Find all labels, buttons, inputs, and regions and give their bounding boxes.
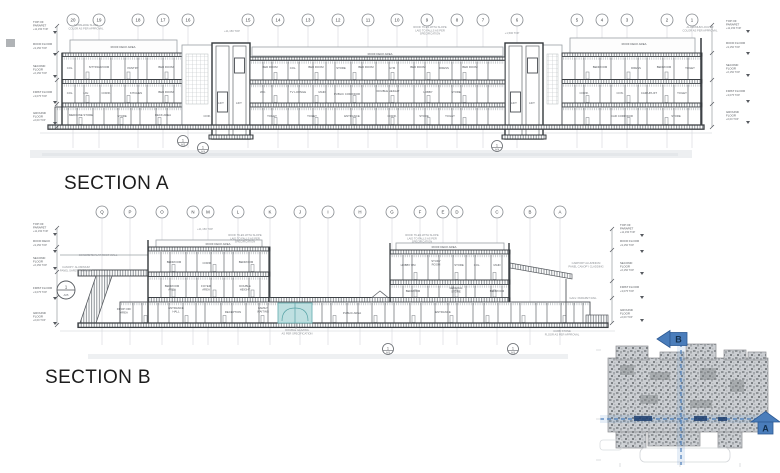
room-label: TV LOUNGE — [290, 90, 306, 94]
grid-bubble-label: 12 — [336, 18, 341, 23]
key-plan-room-block — [650, 372, 670, 380]
room-label: COL. — [67, 91, 74, 95]
level-elevation: +11,150 TOP — [33, 27, 48, 31]
level-label: FIRST FLOOR — [726, 89, 745, 93]
level-flag-icon — [746, 52, 750, 55]
grid-bubble-label: J — [299, 210, 301, 215]
level-flag-icon — [746, 100, 750, 103]
core-pit — [502, 135, 546, 139]
room-label: LIFT — [529, 101, 535, 105]
room-label: CAR CORRIDOR — [611, 114, 633, 118]
level-elevation: +3,075 TOP — [33, 94, 47, 98]
room-label: MAID — [494, 263, 501, 267]
level-label: TOP OFPARAPET — [726, 19, 740, 27]
level-label: TOP OFPARAPET — [33, 222, 47, 230]
room-label: BED ROOM — [158, 90, 174, 94]
room-label: MEDICINE STORE — [69, 113, 93, 117]
room-label: BEDROOM — [657, 65, 672, 69]
level-elevation: +9,150 TOP — [620, 243, 634, 247]
grid-bubble-label: K — [269, 210, 272, 215]
key-plan-wing — [686, 344, 716, 360]
grid-bubble-label: 18 — [136, 18, 141, 23]
grid-bubble-label: N — [191, 210, 194, 215]
room-label: LIFT — [511, 101, 517, 105]
note-label: +11,150 TOP — [197, 227, 213, 231]
section-b-title: SECTION B — [45, 367, 151, 389]
window-strip — [251, 108, 504, 110]
room-label: STORE — [336, 66, 346, 70]
level-flag-icon — [53, 322, 57, 325]
detail-sheet: A05 — [181, 144, 186, 147]
level-label: FIRST FLOOR — [620, 285, 639, 289]
room-label: FAMILYWAITING — [257, 306, 269, 313]
note-label: CARPORT ALUMINIUMPANEL CANOPY CLADDING — [568, 261, 603, 268]
note-label: GALV. PARAPET RAIL — [569, 296, 597, 300]
margin-mark — [6, 39, 15, 47]
room-label: LIFT — [236, 101, 242, 105]
section-line-dash — [694, 416, 707, 421]
level-flag-icon — [746, 121, 750, 124]
level-flag-icon — [53, 233, 57, 236]
room-label: CON. — [617, 91, 624, 95]
room-label: ROOF DECK AREA — [111, 45, 136, 49]
room-label: ROOF DECK AREA — [432, 245, 457, 249]
level-flag-icon — [53, 297, 57, 300]
grid-bubble-label: 15 — [246, 18, 251, 23]
key-plan-wing — [748, 352, 766, 360]
level-elevation: +11,150 TOP — [726, 26, 741, 30]
section-line-dash — [718, 417, 727, 421]
note-label: ROOF TILES WITH SLOPELAID TO FALLS AS PE… — [413, 25, 446, 36]
room-label: COL. — [67, 66, 74, 70]
room-label: CAR UPLIFT — [641, 91, 658, 95]
skylight — [372, 291, 388, 298]
grid-bubble-label: Q — [100, 210, 104, 215]
room-label: TOILET — [677, 91, 687, 95]
note-label: CANOPY: ALUMINIUMPANEL SAFETY GLAZING — [60, 265, 92, 272]
floor-slab — [250, 103, 505, 107]
level-elevation: +0,00 TOP — [620, 315, 633, 319]
note-label: +11,150 TOP — [224, 29, 240, 33]
level-flag-icon — [640, 272, 644, 275]
room-label: BED ROOM — [358, 65, 374, 69]
detail-number: 1 — [496, 143, 498, 147]
level-elevation: +6,150 TOP — [33, 71, 47, 75]
room-label: PUBLIC CORRIDOR — [334, 92, 360, 96]
grid-bubble-label: 13 — [306, 18, 311, 23]
room-label: TOILET — [267, 114, 277, 118]
level-label: SECONDFLOOR — [33, 64, 45, 72]
note-label: CONCRETE FLAT ROOF WALL — [79, 253, 118, 257]
key-plan-wing — [724, 350, 746, 360]
room-label: STUDYROOM — [431, 259, 441, 266]
room-label: PUBLIC AREA — [343, 311, 361, 315]
level-flag-icon — [746, 74, 750, 77]
level-label: FIRST FLOOR — [33, 90, 52, 94]
detail-sheet: A06 — [386, 352, 391, 355]
floor-slab — [250, 80, 505, 84]
room-label: ENTRANCE — [344, 114, 360, 118]
note-label: ROOF TILES WITH SLOPELAID TO FALLS AS PE… — [405, 233, 438, 244]
room-label: ROOF DECK AREA — [206, 242, 231, 246]
level-flag-icon — [53, 75, 57, 78]
room-label: BEDROOM — [593, 65, 608, 69]
grid-bubble-label: H — [358, 210, 361, 215]
level-elevation: +9,150 TOP — [33, 243, 47, 247]
section-a-title: SECTION A — [64, 173, 169, 195]
key-plan-wing — [648, 432, 700, 446]
room-label: ROOF DECK AREA — [622, 42, 647, 46]
ramp — [80, 276, 112, 323]
room-label: GYM — [389, 66, 396, 70]
window-strip — [121, 303, 589, 305]
room-label: CORR. — [101, 91, 110, 95]
level-label: ROOF FLOOR — [33, 42, 52, 46]
detail-number: 1 — [512, 346, 514, 350]
room-label: FOYERAREA — [201, 284, 211, 291]
ghost-underlay — [88, 354, 568, 359]
level-label: SECONDFLOOR — [620, 261, 632, 269]
room-label: LAV. — [83, 91, 89, 95]
floor-slab — [78, 323, 608, 327]
floor-slab — [48, 125, 704, 129]
level-elevation: +3,075 TOP — [33, 290, 47, 294]
level-flag-icon — [53, 31, 57, 34]
detail-sheet: A06 — [511, 352, 516, 355]
room-label: BED ROOM — [308, 65, 324, 69]
room-label: DRESS — [631, 66, 641, 70]
floor-slab — [562, 103, 702, 107]
level-label: GROUNDFLOOR — [33, 311, 46, 319]
room-label: PANTRY — [127, 66, 138, 70]
grid-bubble-label: G — [390, 210, 394, 215]
grid-bubble-label: A — [559, 210, 562, 215]
grid-bubble-label: F — [419, 210, 422, 215]
room-label: MAID — [319, 90, 326, 94]
drawing-canvas: 2019181716151413121110987654321TOP OFPAR… — [0, 0, 780, 473]
grid-bubble-label: O — [160, 210, 164, 215]
level-flag-icon — [53, 250, 57, 253]
room-label: DOUBLE HEIGHT — [377, 89, 400, 93]
grid-bubble-label: M — [206, 210, 210, 215]
grid-bubble-label: 11 — [366, 18, 371, 23]
grid-bubble-label: 14 — [276, 18, 281, 23]
floor-band — [390, 254, 510, 280]
floor-slab — [148, 272, 270, 277]
level-label: GROUNDFLOOR — [726, 110, 739, 118]
note-label: ALUMINIUM LOUVERCOLOR AS PER APPROVAL — [683, 25, 718, 32]
level-elevation: +9,150 TOP — [726, 45, 740, 49]
floor-slab — [148, 247, 270, 251]
floor-slab — [562, 53, 702, 57]
grid-bubble-label: I — [327, 210, 328, 215]
room-label: BEDROOM — [406, 289, 421, 293]
room-label: LIFT — [218, 101, 224, 105]
key-plan-room-block — [640, 395, 658, 404]
floor-slab — [148, 298, 510, 303]
level-elevation: +11,150 TOP — [33, 229, 48, 233]
floor-slab — [62, 53, 182, 57]
window-strip — [56, 108, 181, 110]
level-flag-icon — [640, 250, 644, 253]
room-label: DECK AREA — [155, 113, 171, 117]
room-label: COR. — [204, 114, 211, 118]
window-strip — [149, 277, 269, 279]
room-label: TOILET — [445, 114, 455, 118]
grid-bubble-label: E — [442, 210, 445, 215]
level-elevation: +0,00 TOP — [726, 117, 739, 121]
window-strip — [251, 85, 504, 87]
level-elevation: +0,00 TOP — [33, 118, 46, 122]
floor-slab — [250, 57, 505, 60]
level-elevation: +6,150 TOP — [620, 268, 634, 272]
level-label: ROOF DECK — [33, 239, 50, 243]
level-label: FIRST FLOOR — [33, 286, 52, 290]
section-arrow-b-icon — [657, 331, 670, 348]
room-label: ENTRANCE — [435, 310, 451, 314]
key-plan-room-block — [620, 365, 634, 375]
room-label: KITCHEN — [130, 91, 142, 95]
room-label: BED ROOM — [462, 65, 478, 69]
carport-canopy — [510, 263, 572, 279]
detail-sheet: A04 — [201, 151, 206, 154]
level-label: SECONDFLOOR — [726, 63, 738, 71]
room-label: CORR. — [202, 261, 211, 265]
floor-slab — [562, 80, 702, 84]
level-elevation: +3,075 TOP — [726, 93, 740, 97]
grid-bubble-label: 19 — [97, 18, 102, 23]
room-label: TOILET — [685, 66, 695, 70]
window-strip — [149, 252, 269, 254]
floor-slab — [62, 80, 182, 84]
level-label: ROOF FLOOR — [620, 239, 639, 243]
level-label: TOP OFPARAPET — [620, 223, 634, 231]
floor-slab — [62, 103, 182, 107]
key-plan-room-block — [700, 368, 716, 380]
level-label: GROUNDFLOOR — [33, 111, 46, 119]
section-marker-a-label: A — [762, 424, 769, 434]
level-elevation: +3,075 TOP — [620, 289, 634, 293]
room-label: BEDROOM — [167, 260, 182, 264]
grid-bubble-label: B — [529, 210, 532, 215]
room-label: DOUBLEHEIGHT — [239, 284, 251, 291]
room-label: HOBBY RM — [401, 263, 417, 267]
room-label: CORR. — [579, 91, 588, 95]
grid-bubble-label: 20 — [71, 18, 76, 23]
room-label: BEDROOM — [490, 289, 505, 293]
level-flag-icon — [53, 53, 57, 56]
room-label: DRESS — [439, 66, 449, 70]
room-label: LOBBY — [423, 90, 432, 94]
room-label: TOILET — [307, 114, 317, 118]
grid-bubble-label: 17 — [161, 18, 166, 23]
room-label: CORR. — [387, 114, 396, 118]
generated-linework: 2019181716151413121110987654321TOP OFPAR… — [0, 0, 768, 467]
level-flag-icon — [640, 319, 644, 322]
level-flag-icon — [53, 267, 57, 270]
core-pit — [209, 135, 253, 139]
level-elevation: +11,150 TOP — [620, 230, 635, 234]
detail-sheet: A04 — [495, 149, 500, 152]
room-label: STORE — [454, 263, 464, 267]
room-label: COL. — [290, 66, 297, 70]
room-label: BEDROOM — [239, 260, 254, 264]
drawing-sheet: 2019181716151413121110987654321TOP OFPAR… — [0, 0, 780, 473]
grid-bubble-label: 10 — [395, 18, 400, 23]
room-label: STORE — [451, 90, 461, 94]
level-flag-icon — [640, 234, 644, 237]
key-plan-wing — [616, 346, 648, 360]
level-elevation: +9,150 TOP — [33, 46, 47, 50]
level-elevation: +0,00 TOP — [33, 318, 46, 322]
room-label: BED ROOM — [158, 65, 174, 69]
level-flag-icon — [53, 101, 57, 104]
grid-bubble-label: P — [129, 210, 132, 215]
level-label: TOP OFPARAPET — [33, 20, 47, 28]
grid-bubble-label: D — [455, 210, 458, 215]
level-flag-icon — [640, 296, 644, 299]
room-label: STORE — [419, 114, 429, 118]
key-plan-wing — [718, 432, 742, 448]
level-label: SECONDFLOOR — [33, 256, 45, 264]
grid-bubble-label: 16 — [186, 18, 191, 23]
note-label: DOUBLE GLAZINGAS PER SPECIFICATION — [281, 328, 312, 335]
detail-sheet: A05 — [64, 293, 69, 297]
curb-plinth — [586, 315, 608, 323]
level-elevation: +6,150 TOP — [33, 263, 47, 267]
grid-bubble-label: C — [495, 210, 498, 215]
room-label: SITTING ROOM — [89, 65, 110, 69]
section-marker-b-label: B — [675, 335, 682, 345]
room-label: RECEPTION — [225, 310, 241, 314]
level-label: ROOF FLOOR — [726, 41, 745, 45]
level-flag-icon — [746, 30, 750, 33]
glazed-lattice — [547, 54, 558, 104]
glazed-lattice — [186, 54, 208, 104]
detail-number: 1 — [182, 138, 184, 142]
detail-number: 1 — [202, 145, 204, 149]
floor-slab — [390, 280, 510, 285]
note-label: CURB STONEFLOOR AS PER APPROVAL — [545, 329, 580, 336]
room-label: STORE — [671, 114, 681, 118]
room-label: W.C. — [260, 90, 266, 94]
level-label: GROUNDFLOOR — [620, 308, 633, 316]
room-label: BED ROOM — [410, 65, 426, 69]
section-line-dash — [634, 416, 652, 421]
window-strip — [251, 61, 504, 63]
room-label: COL. — [474, 263, 481, 267]
room-label: BED ROOM — [262, 65, 278, 69]
ghost-underlay — [42, 153, 678, 156]
key-plan-room-block — [690, 400, 712, 408]
room-label: ROOF DECK AREA — [368, 52, 393, 56]
level-elevation: +6,150 TOP — [726, 70, 740, 74]
room-label: STORE — [117, 114, 127, 118]
key-plan-room-block — [730, 380, 744, 392]
note-label: +1,500 TOP — [505, 31, 520, 35]
detail-number: 1 — [387, 346, 389, 350]
section-marker-b: B — [657, 331, 687, 348]
floor-slab — [390, 250, 510, 254]
